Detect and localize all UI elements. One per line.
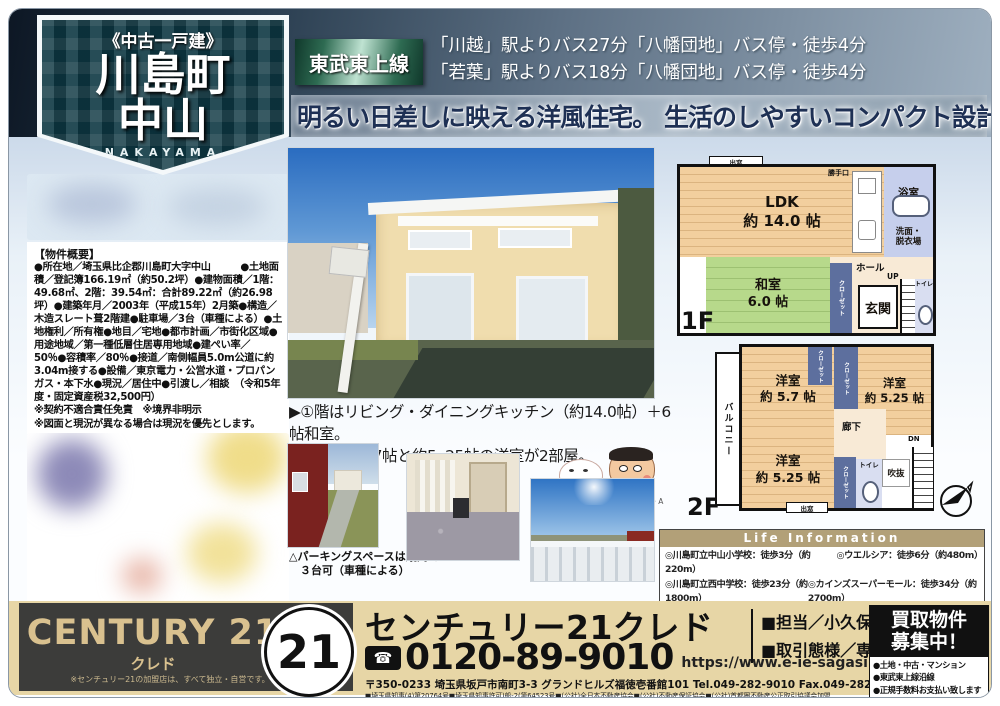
closet-2f-c: クローゼット [834, 457, 856, 508]
photo-railing [531, 547, 654, 581]
access-line-1: 「川越」駅よりバス27分「八幡団地」バス停・徒歩4分 [431, 33, 991, 60]
closet-2f-a: クローゼット [808, 347, 832, 385]
overview-note-2: ※図面と現況が異なる場合は現況を優先とします。 [34, 418, 282, 431]
photo-upper-window [408, 230, 472, 250]
train-line-badge: 東武東上線 [295, 39, 423, 85]
sink-icon [858, 220, 876, 240]
shinchan-hair [609, 447, 653, 461]
overview-title: 【物件概要】 [34, 246, 282, 262]
buyback-box: 買取物件 募集中！ ●土地・中古・マンション ●東武東上線沿線 ●正規手数料お支… [869, 605, 989, 698]
feature-line-1: ▶①階はリビング・ダイニングキッチン（約14.0帖）＋6帖和室。 [289, 401, 679, 445]
closet-1f: クローゼット [830, 263, 852, 333]
phone-number: 0120-89-9010 [405, 637, 673, 678]
photo-red-house [288, 444, 328, 547]
flyer-sheet: 《中古一戸建》 川島町 中山 NAKAYAMA 東武東上線 「川越」駅よりバス2… [8, 8, 992, 698]
life-information-title: Life Information [660, 530, 984, 547]
bathtub-icon [892, 195, 930, 217]
hall-label: ホール [856, 260, 885, 274]
closet-2f-b: クローゼット [834, 347, 858, 409]
room-washroom: 洗面・ 脱衣場 [884, 217, 933, 257]
buyback-item: ●東武東上線沿線 [873, 671, 985, 683]
century21-wordmark: CENTURY 21 [25, 613, 281, 653]
toilet-icon [862, 481, 879, 503]
property-title-line2: 中山 [42, 98, 284, 144]
room-yoshitsu-525-bottom: 洋室 約 5.25 帖 [742, 431, 834, 508]
balcony-view-photo [531, 479, 654, 581]
property-title-line1: 川島町 [42, 52, 284, 98]
photo-tv [453, 498, 469, 518]
footer-divider [751, 609, 753, 663]
blur-blob [207, 433, 287, 493]
buyback-title: 買取物件 募集中！ [870, 606, 988, 657]
up-label: UP [887, 272, 899, 281]
floorplan-2f-main: 洋室 約 5.7 帖 クローゼット クローゼット 洋室 約 5.25 帖 廊下 … [739, 344, 934, 511]
buyback-item: ●正規手数料お支払い致します [873, 684, 985, 696]
photo-trees [618, 188, 654, 348]
photo-window [292, 472, 308, 492]
photo-upper-trim [398, 216, 598, 226]
compass-icon [934, 477, 978, 521]
century21-seal: 21 [264, 607, 354, 697]
buyback-item: ●土地・中古・マンション [873, 659, 985, 671]
shinchan-eye [619, 465, 628, 472]
toilet-icon [918, 305, 933, 325]
redacted-photo-block [27, 433, 289, 605]
photo-sign-box [329, 246, 370, 278]
toilet-label-1f: トイレ [915, 279, 933, 288]
life-item: ◎ウエルシア：徒歩6分（約480m） [837, 549, 979, 578]
access-info: 「川越」駅よりバス27分「八幡団地」バス停・徒歩4分 「若葉」駅よりバス18分「… [431, 33, 991, 87]
life-row: ◎川島町立中山小学校：徒歩3分（約220m） ◎ウエルシア：徒歩6分（約480m… [665, 549, 979, 578]
blur-blob [187, 523, 257, 583]
overview-body: ●所在地／埼玉県比企郡川島町大字中山 ●土地面積／登記簿166.19㎡（約50.… [34, 262, 282, 404]
catchphrase: 明るい日差しに映える洋風住宅。 生活のしやすいコンパクト設計。 [291, 98, 992, 134]
property-badge-plaid: 《中古一戸建》 川島町 中山 NAKAYAMA [42, 20, 284, 170]
floorplan-1f: LDK 約 14.0 帖 勝手口 浴室 洗面・ 脱衣場 ホール UP 和室 6.… [677, 164, 936, 336]
room-toilet-1f: トイレ [915, 279, 933, 333]
dog-eye [583, 469, 588, 472]
photo-sun-glare [571, 479, 617, 505]
property-overview-box: 【物件概要】 ●所在地／埼玉県比企郡川島町大字中山 ●土地面積／登記簿166.1… [27, 242, 289, 434]
overview-note-1: ※契約不適合責任免責 ※境界非明示 [34, 404, 282, 417]
catchphrase-band: 明るい日差しに映える洋風住宅。 生活のしやすいコンパクト設計。 [291, 95, 987, 137]
photo-curtain [415, 460, 455, 518]
freedial-icon: ☎ [365, 646, 401, 670]
balcony-strip: バルコニー [715, 352, 741, 506]
photo-window-right [516, 276, 588, 348]
life-item: ◎川島町立中山小学校：徒歩3分（約220m） [665, 549, 837, 578]
photo-far-house [334, 470, 362, 492]
blur-blob [122, 558, 162, 593]
photo-window-left [406, 273, 474, 347]
floorplan-2f: バルコニー 洋室 約 5.7 帖 クローゼット クローゼット 洋室 約 5.25… [715, 344, 945, 516]
shinchan-eye [633, 465, 642, 472]
stove-icon [858, 178, 876, 194]
f2-bay-window-label: 出窓 [786, 502, 828, 513]
photo-upper-window [498, 228, 572, 248]
room-void: 吹抜 [882, 459, 910, 487]
kitchen-counter [852, 171, 882, 253]
stairs-2f [912, 447, 933, 508]
room-toilet-2f: トイレ [856, 459, 882, 508]
photo-rail-top [531, 541, 654, 547]
main-exterior-photo [288, 148, 654, 398]
photo-driveway [394, 348, 654, 398]
buyback-items: ●土地・中古・マンション ●東武東上線沿線 ●正規手数料お支払い致します [870, 657, 988, 698]
parking-photo [288, 444, 378, 547]
f1-kitchen-door-label: 勝手口 [828, 168, 849, 178]
photo-carpet [407, 512, 519, 560]
century21-shopname: クレド [25, 653, 281, 674]
interior-photo [407, 454, 519, 560]
blur-blob [37, 439, 107, 509]
room-washitsu: 和室 6.0 帖 [706, 257, 830, 333]
redacted-price-block [27, 174, 289, 240]
dog-eye [569, 469, 574, 472]
blur-blob [167, 188, 267, 226]
blur-blob [47, 184, 137, 224]
toilet-label-2f: トイレ [856, 459, 882, 469]
access-line-2: 「若葉」駅よりバス18分「八幡団地」バス停・徒歩4分 [431, 60, 991, 87]
license-line: ■埼玉県知事(4)第20764号■埼玉県知事許可)般-2(第64523号■(公社… [365, 690, 831, 698]
f1-label: 1F [681, 307, 714, 335]
room-genkan: 玄関 [858, 285, 898, 329]
dn-label: DN [908, 435, 920, 443]
hallway-label: 廊下 [842, 419, 861, 433]
